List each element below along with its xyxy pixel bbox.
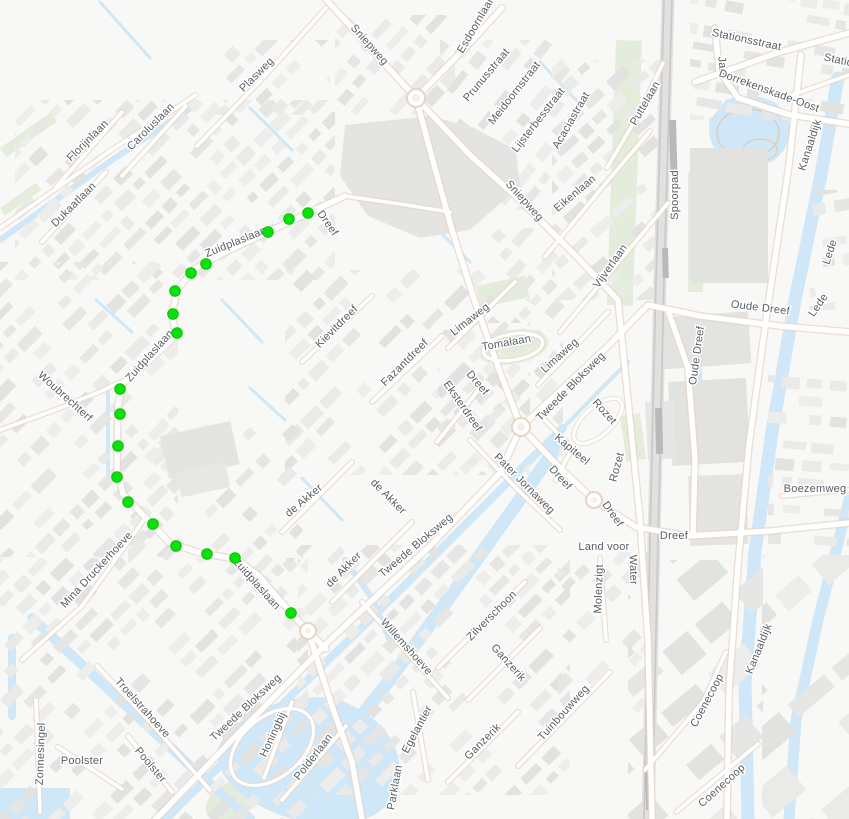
route-dot[interactable] xyxy=(171,541,182,552)
street-label: Water xyxy=(626,555,639,586)
street-label: Land voor xyxy=(578,541,629,553)
route-dot[interactable] xyxy=(284,214,295,225)
route-dot[interactable] xyxy=(263,227,274,238)
route-dot[interactable] xyxy=(113,441,124,452)
route-dot[interactable] xyxy=(172,328,183,339)
street-label: Zonnesingel xyxy=(34,722,48,785)
route-dot[interactable] xyxy=(202,549,213,560)
route-dot[interactable] xyxy=(186,268,197,279)
map-viewport[interactable]: FlorijnlaanCaroluslaanDukaatlaanPlaswegS… xyxy=(0,0,849,819)
route-dot[interactable] xyxy=(170,286,181,297)
route-dot[interactable] xyxy=(112,472,123,483)
map-canvas[interactable]: FlorijnlaanCaroluslaanDukaatlaanPlaswegS… xyxy=(0,0,849,819)
route-dot[interactable] xyxy=(115,384,126,395)
route-dot[interactable] xyxy=(148,519,159,530)
street-label: Dreef xyxy=(660,530,689,542)
street-label: Spoorpad xyxy=(669,170,681,220)
route-dot[interactable] xyxy=(123,497,134,508)
route-dot[interactable] xyxy=(303,208,314,219)
route-dot[interactable] xyxy=(286,608,297,619)
route-dot[interactable] xyxy=(201,259,212,270)
route-dot[interactable] xyxy=(168,309,179,320)
street-label: Molenzigt xyxy=(592,564,606,614)
route-dot[interactable] xyxy=(115,409,126,420)
street-label: Poolster xyxy=(61,755,103,767)
route-dot[interactable] xyxy=(230,553,241,564)
street-label: Boezemweg xyxy=(784,483,847,495)
